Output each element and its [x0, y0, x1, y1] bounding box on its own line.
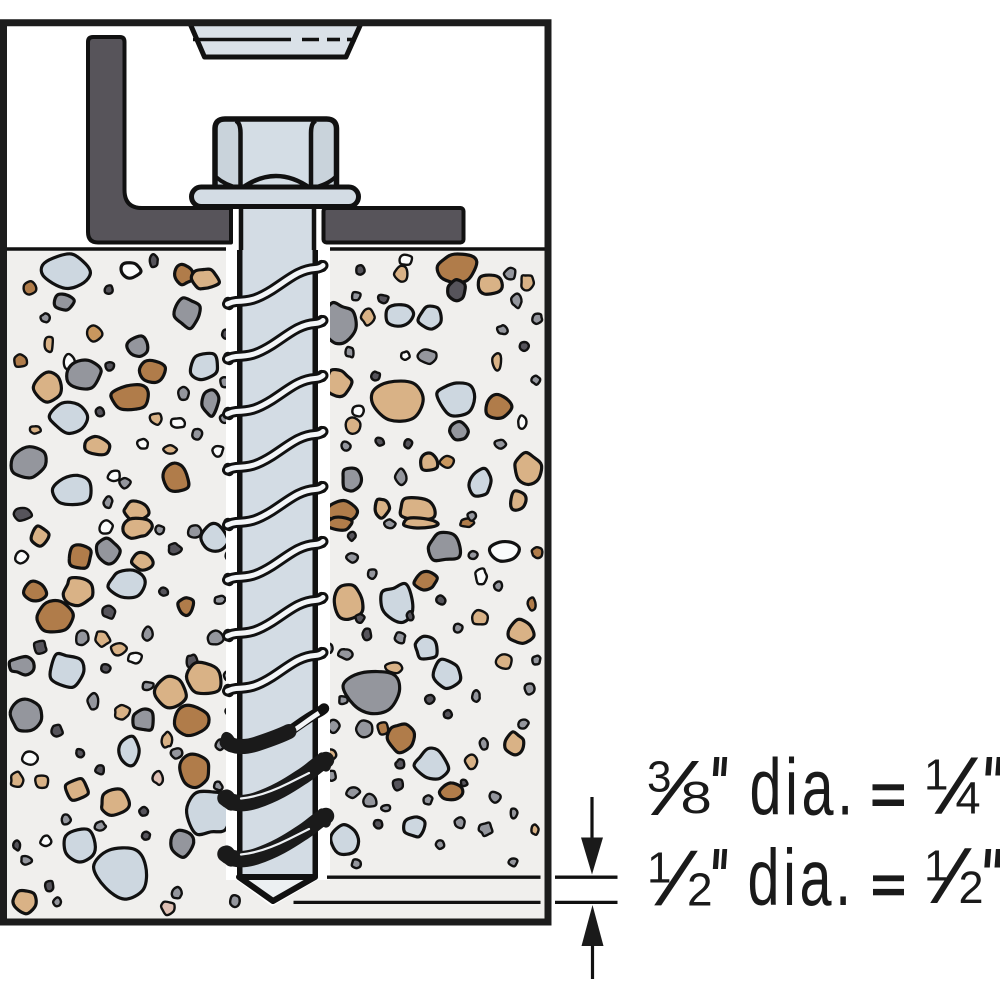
- svg-text:dia.: dia.: [748, 833, 855, 923]
- svg-text:1: 1: [924, 751, 948, 800]
- svg-text:dia.: dia.: [750, 742, 857, 832]
- svg-text:8: 8: [681, 773, 712, 823]
- svg-text:2: 2: [687, 863, 713, 915]
- svg-text:4: 4: [956, 773, 981, 824]
- svg-text:2: 2: [959, 862, 984, 913]
